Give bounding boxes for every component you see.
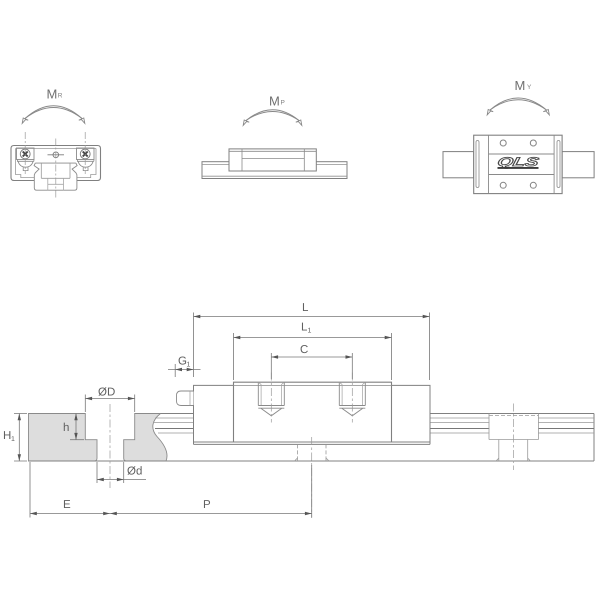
- svg-text:1: 1: [187, 362, 191, 369]
- svg-text:Y: Y: [527, 84, 532, 91]
- svg-text:1: 1: [11, 436, 15, 443]
- svg-text:1: 1: [308, 328, 312, 335]
- svg-text:M: M: [515, 78, 526, 93]
- svg-text:ØD: ØD: [98, 387, 115, 399]
- svg-text:L: L: [302, 302, 309, 314]
- svg-text:h: h: [63, 422, 69, 434]
- svg-text:M: M: [269, 94, 280, 109]
- svg-text:R: R: [58, 93, 63, 100]
- svg-text:P: P: [203, 499, 211, 511]
- svg-text:E: E: [63, 499, 71, 511]
- svg-text:Ød: Ød: [127, 466, 142, 478]
- svg-text:M: M: [47, 87, 58, 102]
- svg-text:QLS: QLS: [496, 155, 541, 169]
- svg-text:P: P: [281, 100, 285, 107]
- svg-text:C: C: [300, 344, 308, 356]
